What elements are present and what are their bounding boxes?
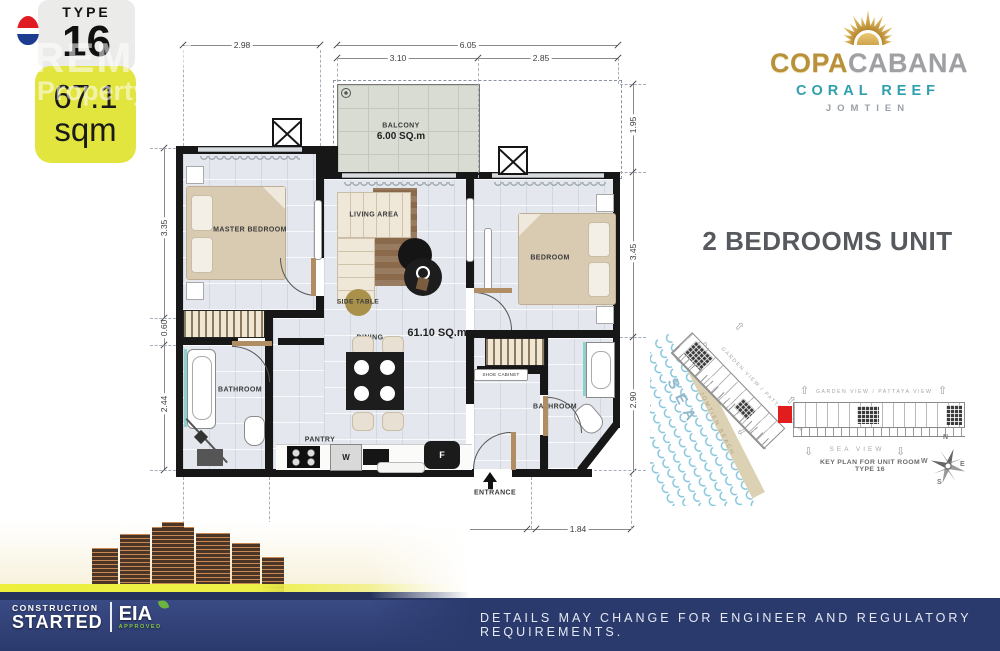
dim-guide (594, 470, 646, 471)
type-badge: TYPE 16 (38, 0, 135, 70)
dining-table (346, 352, 404, 410)
garden-view-top-label: GARDEN VIEW / PATTAYA VIEW (816, 389, 928, 395)
dim-label: 1.95 (628, 115, 638, 136)
dim-guide (531, 477, 532, 529)
bath1-vanity (197, 449, 223, 466)
dining-chair (382, 412, 404, 431)
pillow (588, 262, 610, 297)
dim-label: 2.85 (531, 53, 552, 63)
nightstand (186, 166, 204, 184)
wall (176, 146, 183, 477)
area-unit: sqm (35, 113, 136, 148)
sun-icon (823, 4, 913, 50)
curtain-wave (200, 156, 300, 161)
dim-guide (620, 172, 646, 173)
dim-guide (618, 58, 619, 84)
brand-subtitle: CORAL REEF (770, 83, 966, 99)
dim-tick (614, 41, 621, 48)
badge-divider (110, 602, 112, 632)
unit-heading: 2 BEDROOMS UNIT (700, 226, 955, 257)
brand-silver: CABANA (848, 48, 968, 78)
master-wardrobe (183, 310, 265, 338)
eia-text: EIA APPROVED (119, 604, 162, 630)
flyer-page: TYPE 16 67.1 sqm REMAX Property Pros (0, 0, 1000, 651)
window (342, 173, 456, 178)
blanket-fold (263, 187, 285, 209)
dim-guide (620, 84, 646, 85)
dim-guide (150, 318, 176, 319)
dim-line (633, 84, 634, 472)
plate (354, 360, 369, 375)
living-area-label: LIVING AREA (349, 212, 398, 219)
dim-label: 2.98 (232, 40, 253, 50)
dim-label: 6.05 (458, 40, 479, 50)
wall-niche (484, 228, 492, 292)
total-area-label: 61.10 SQ.m (397, 327, 477, 339)
construction-bottom: STARTED (12, 613, 103, 631)
dim-label: 1.84 (568, 524, 589, 534)
view-arrow-icon: ⇧ (731, 320, 745, 334)
entrance-label: ENTRANCE (474, 490, 516, 497)
bedroom-label: BEDROOM (530, 255, 569, 262)
dim-guide (631, 474, 632, 529)
ac-unit-icon (272, 118, 302, 147)
wall (466, 330, 620, 338)
area-value: 67.1 (35, 66, 136, 113)
shoe-cabinet-label: SHOE CABINET (474, 369, 528, 381)
washing-machine: W (330, 444, 362, 471)
wall-niche (466, 198, 474, 262)
wall (176, 338, 238, 345)
plate (380, 360, 395, 375)
remax-balloon-icon (17, 16, 39, 45)
sea-view-label: SEA VIEW (826, 446, 888, 453)
dim-guide (337, 58, 338, 82)
compass-e: E (960, 461, 965, 468)
wall (540, 435, 548, 469)
type-number: 16 (38, 20, 135, 64)
dim-label: 3.45 (628, 242, 638, 263)
door-leaf (474, 288, 512, 293)
area-badge: 67.1 sqm (35, 66, 136, 163)
keyplan-caption: KEY PLAN FOR UNIT ROOM TYPE 16 (810, 459, 930, 473)
wall (278, 338, 324, 345)
blanket-fold (519, 214, 541, 236)
keyplan: JOMTIEN BEACH SEA DIRECT SEA VIEW ⇧ ⇧ GA… (650, 318, 998, 506)
dining-chair (352, 412, 374, 431)
bathroom1-label: BATHROOM (218, 387, 262, 394)
eia-label: EIA (119, 604, 162, 624)
compass-s: S (937, 479, 942, 486)
building-wing-horizontal (793, 402, 965, 428)
toilet (244, 416, 265, 446)
core-block (857, 406, 879, 424)
drain-icon (341, 88, 351, 98)
pillow (191, 195, 213, 231)
entrance-arrow-icon (483, 472, 497, 482)
bath2-vanity (586, 342, 615, 398)
compass-w: W (921, 458, 928, 465)
dim-label: 3.10 (388, 53, 409, 63)
balcony-row (793, 428, 965, 437)
door-leaf (511, 432, 516, 470)
unit-location-marker (778, 406, 792, 423)
window (198, 147, 302, 152)
balloon-blue-band (17, 34, 39, 45)
dim-guide (150, 345, 176, 346)
curtain-wave (494, 182, 606, 187)
balcony-label: BALCONY (382, 123, 419, 130)
pillow (588, 222, 610, 257)
nightstand (186, 282, 204, 300)
construction-text: CONSTRUCTION STARTED (12, 603, 103, 631)
balcony-area-label: 6.00 SQ.m (355, 131, 447, 142)
wall (265, 310, 324, 318)
counter-tray (377, 462, 425, 473)
dim-guide (150, 470, 176, 471)
sink-basin (591, 351, 611, 389)
dim-guide (620, 337, 646, 338)
disclaimer-text: DETAILS MAY CHANGE FOR ENGINEER AND REGU… (480, 611, 1000, 639)
brand-name: COPACABANA (770, 50, 966, 77)
dim-tick (316, 41, 323, 48)
master-bedroom-label: MASTER BEDROOM (213, 227, 287, 234)
wall (176, 469, 474, 477)
door-leaf (543, 396, 548, 436)
core-block (946, 405, 962, 425)
pantry-label: PANTRY (305, 437, 335, 444)
fridge: F (424, 441, 460, 469)
dim-guide (150, 148, 176, 149)
shoe-cabinet (485, 338, 545, 366)
nightstand (596, 194, 614, 212)
dim-label: 3.35 (159, 218, 169, 239)
plate (354, 386, 369, 401)
construction-badge: CONSTRUCTION STARTED EIA APPROVED (12, 602, 162, 632)
wall (466, 330, 474, 404)
brand-gold: COPA (770, 48, 848, 78)
view-arrow-icon: ⇧ (804, 444, 813, 455)
dim-guide (320, 50, 321, 146)
tower-crown (162, 522, 184, 528)
dim-line (164, 148, 165, 470)
dim-guide (183, 50, 184, 146)
view-arrow-icon: ⇧ (800, 386, 809, 397)
bathtub-basin (192, 356, 212, 420)
pillow (191, 237, 213, 273)
dim-label: 2.90 (628, 390, 638, 411)
curtain-wave (344, 182, 454, 187)
view-arrow-icon: ⇧ (938, 386, 947, 397)
stove (287, 446, 320, 468)
dim-guide (478, 58, 479, 178)
project-logo: COPACABANA CORAL REEF JOMTIEN (770, 4, 966, 114)
photo-fade-sea (370, 598, 470, 651)
entrance-arrow-stem (488, 482, 493, 489)
bathtub (187, 349, 216, 429)
view-arrow-icon: ⇧ (896, 444, 905, 455)
door-leaf (232, 341, 272, 346)
disclaimer-wrap: DETAILS MAY CHANGE FOR ENGINEER AND REGU… (480, 598, 1000, 651)
building-photo: CONSTRUCTION STARTED EIA APPROVED (0, 522, 470, 651)
side-table-label: SIDE TABLE (337, 299, 379, 306)
door-leaf (311, 258, 316, 296)
dim-label: 2.44 (159, 394, 169, 415)
nightstand (596, 306, 614, 324)
plate (380, 386, 395, 401)
ac-unit-icon (498, 146, 528, 175)
compass-n: N (943, 434, 948, 441)
eia-sub: APPROVED (119, 624, 162, 630)
balloon-red-band (17, 16, 39, 28)
brand-location: JOMTIEN (770, 103, 966, 114)
wall-niche (314, 200, 322, 260)
photo-fade (370, 522, 470, 598)
